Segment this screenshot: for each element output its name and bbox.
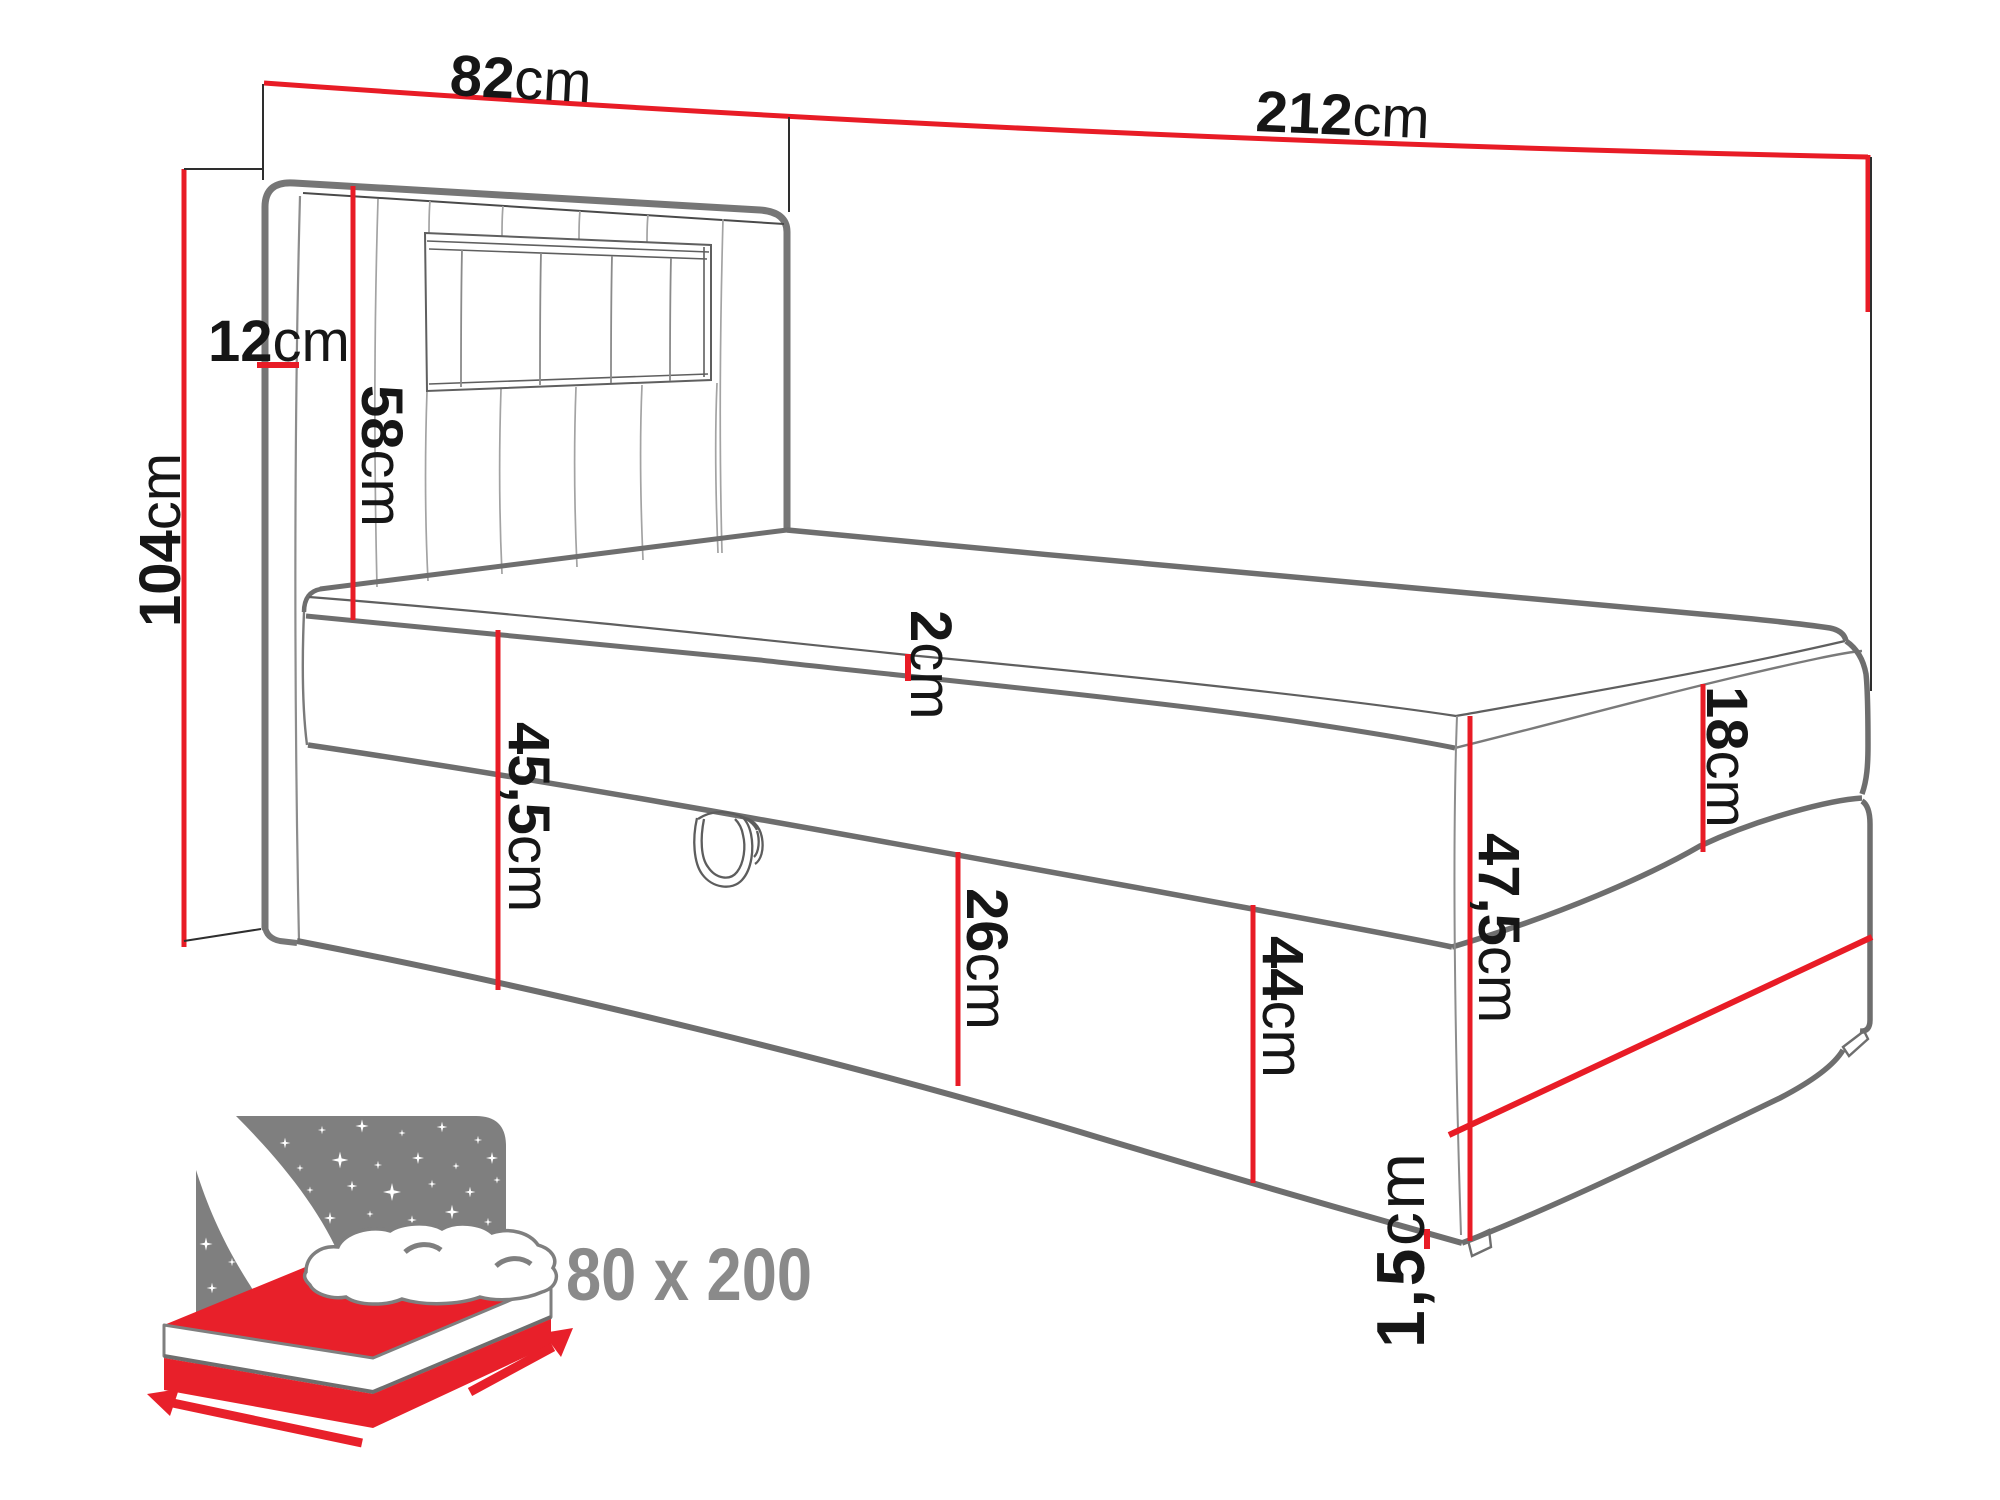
svg-text:1,5cm: 1,5cm <box>1363 1153 1439 1348</box>
svg-text:82cm: 82cm <box>448 43 593 115</box>
svg-text:47,5cm: 47,5cm <box>1466 833 1531 1023</box>
svg-text:58cm: 58cm <box>349 385 414 527</box>
svg-text:80 x 200: 80 x 200 <box>566 1233 812 1316</box>
svg-text:2cm: 2cm <box>898 610 963 720</box>
svg-text:104cm: 104cm <box>128 453 193 627</box>
svg-text:44cm: 44cm <box>1250 936 1315 1078</box>
svg-text:12cm: 12cm <box>208 309 350 374</box>
svg-text:18cm: 18cm <box>1694 686 1759 828</box>
svg-text:45,5cm: 45,5cm <box>496 722 561 912</box>
svg-text:26cm: 26cm <box>954 888 1019 1030</box>
svg-text:212cm: 212cm <box>1254 79 1431 151</box>
